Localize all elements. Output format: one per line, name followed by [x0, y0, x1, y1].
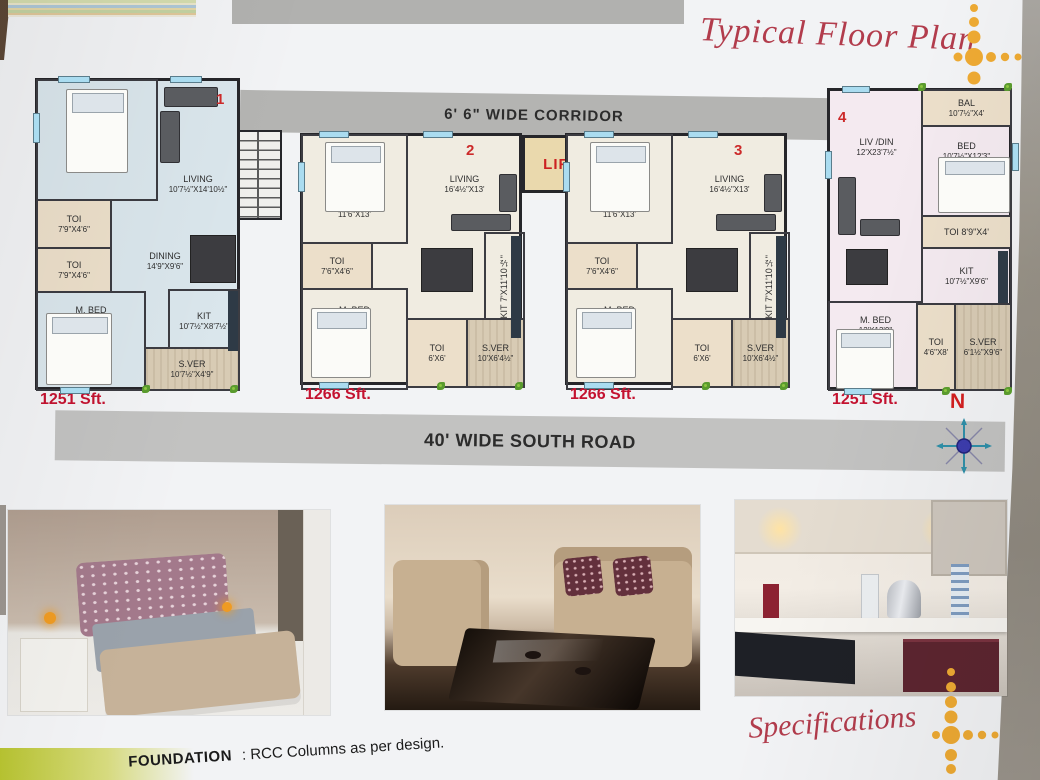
unit-1-floor-plan: BED12'X13'6" LIVING10'7½"X14'10½" TOI7'9…	[35, 78, 240, 390]
pillow	[562, 555, 604, 597]
foundation-value: : RCC Columns as per design.	[241, 734, 444, 763]
sofa-furniture-icon	[451, 214, 511, 231]
dining-table-icon	[421, 248, 473, 292]
unit4-room-bal: BAL10'7½"X4'	[921, 89, 1012, 127]
unit1-room-toi-1: TOI7'9"X4'6"	[36, 199, 112, 249]
top-gray-band	[232, 0, 684, 24]
north-label: N	[950, 390, 966, 414]
kettle	[887, 580, 921, 618]
road-band: 40' WIDE SOUTH ROAD	[55, 410, 1006, 472]
unit3-room-toi-1: TOI7'6"X4'6"	[566, 242, 638, 290]
countertop	[735, 618, 1007, 632]
sofa-furniture-icon	[764, 174, 782, 212]
unit1-room-sver: S.VER10'7½"X4'9"	[144, 347, 240, 391]
bed-furniture-icon	[590, 142, 650, 212]
cabinet-light	[757, 506, 803, 552]
brochure-page: Typical Floor Plan 6' 6" WIDE CORRIDOR L…	[0, 0, 1040, 780]
unit3-room-toi-2: TOI6'X6'	[671, 318, 733, 388]
sofa-furniture-icon	[860, 219, 900, 236]
sofa-furniture-icon	[499, 174, 517, 212]
sofa-furniture-icon	[164, 87, 218, 107]
dining-table-icon	[686, 248, 738, 292]
unit-number: 1	[216, 91, 224, 108]
blender	[861, 574, 879, 620]
kitchen-counter-icon	[228, 291, 238, 351]
bed-furniture-icon	[325, 142, 385, 212]
road-label: 40' WIDE SOUTH ROAD	[424, 429, 636, 453]
unit-3-floor-plan: BED11'6"X13' LIVING16'4½"X13' TOI7'6"X4'…	[565, 133, 787, 385]
compass-rose-icon	[936, 418, 992, 474]
kitchen-counter-icon	[776, 236, 786, 338]
lamp-icon	[44, 612, 56, 624]
coffee-table	[448, 628, 656, 710]
specifications-title: Specifications	[747, 700, 917, 746]
page-edge-shadow	[0, 505, 6, 615]
unit4-room-toi-1: TOI 8'9"X4'	[921, 215, 1012, 249]
unit-number: 2	[466, 142, 474, 159]
dining-table-icon	[846, 249, 888, 285]
lamp-icon	[222, 602, 232, 612]
kitchen-counter-icon	[511, 236, 521, 338]
unit1-room-toi-2: TOI7'9"X4'6"	[36, 247, 112, 293]
bed-furniture-icon	[311, 308, 371, 378]
foundation-spec-line: FOUNDATION: RCC Columns as per design.	[128, 734, 445, 770]
unit2-room-toi-1: TOI7'6"X4'6"	[301, 242, 373, 290]
unit4-room-sver: S.VER6'1½"X9'6"	[954, 303, 1012, 391]
orange-dot-cross-icon	[924, 664, 1036, 780]
sofa-furniture-icon	[160, 111, 180, 163]
curtain	[278, 510, 304, 641]
corridor-label: 6' 6" WIDE CORRIDOR	[444, 105, 624, 125]
table-item	[575, 667, 591, 675]
unit-2-floor-plan: BED11'6"X13' LIVING16'4½"X13' TOI7'6"X4'…	[300, 133, 522, 385]
glass-cabinet	[931, 500, 1007, 576]
bed-furniture-icon	[836, 329, 894, 389]
unit-number: 4	[838, 109, 846, 126]
decorative-stripe-band	[8, 0, 196, 17]
bed-furniture-icon	[938, 157, 1010, 213]
sofa-furniture-icon	[716, 214, 776, 231]
red-canister	[763, 584, 779, 618]
bed-furniture-icon	[66, 89, 128, 173]
pillar	[303, 510, 330, 715]
bed-furniture-icon	[46, 313, 112, 385]
unit4-room-toi-2: TOI4'6"X8'	[916, 303, 956, 391]
pillow	[612, 555, 654, 597]
bed-furniture-icon	[576, 308, 636, 378]
table-item	[525, 651, 541, 659]
unit-4-floor-plan: BAL10'7½"X4' LIV /DIN12'X23'7½" BED10'7½…	[827, 88, 1012, 390]
bedroom-photo	[8, 510, 330, 715]
kitchen-counter-icon	[998, 251, 1008, 303]
unit2-room-toi-2: TOI6'X6'	[406, 318, 468, 388]
unit-number: 3	[734, 142, 742, 159]
sofa-furniture-icon	[838, 177, 856, 235]
living-room-photo	[385, 505, 700, 710]
blue-jar	[951, 564, 969, 618]
nightstand	[20, 638, 88, 712]
dining-table-icon	[190, 235, 236, 283]
cooktop	[735, 632, 855, 684]
